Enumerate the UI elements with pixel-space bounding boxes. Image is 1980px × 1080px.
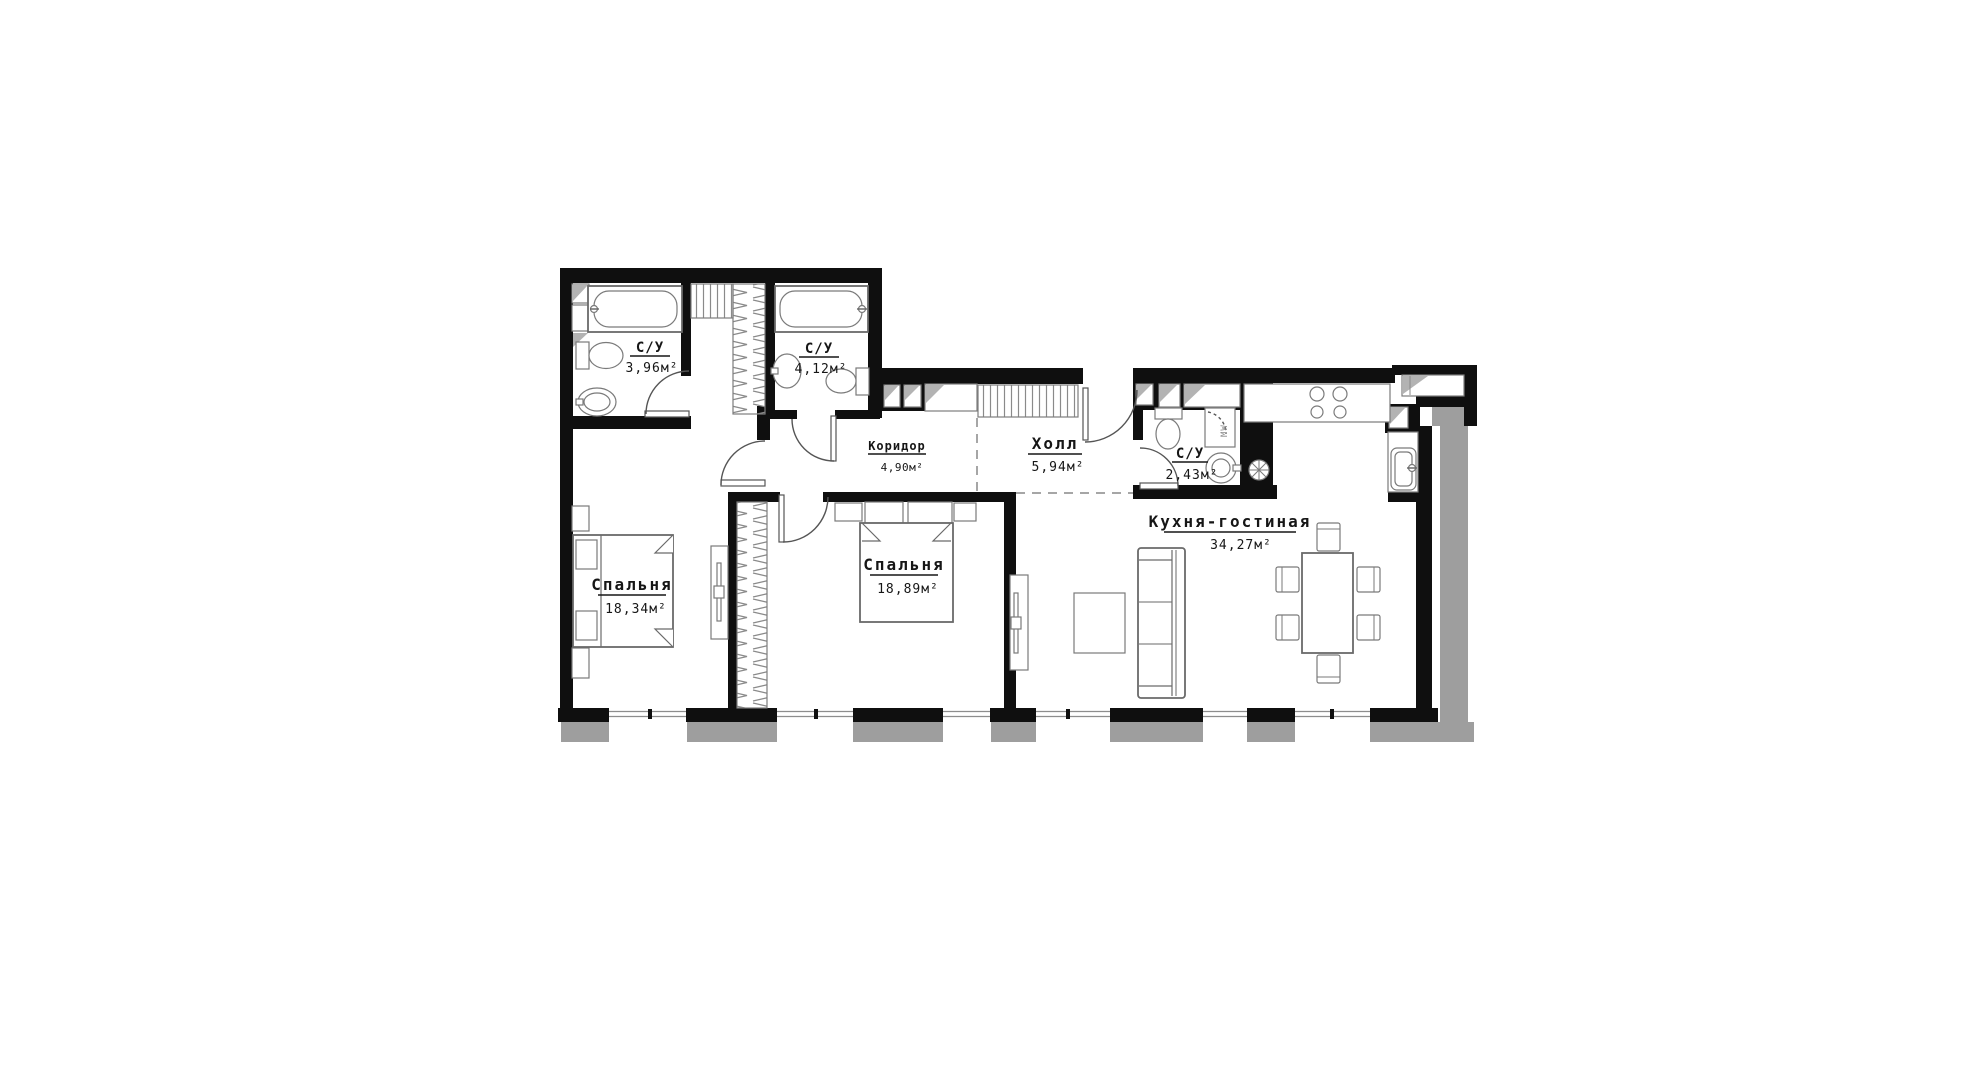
svg-text:С/У: С/У	[1176, 446, 1204, 462]
chair-icon	[1276, 567, 1299, 592]
washing-machine-icon: MW	[1205, 408, 1235, 447]
kitchen-counter-top	[1244, 384, 1390, 422]
dining-table-icon	[1302, 553, 1353, 653]
zone-boundaries	[977, 418, 1133, 493]
sink-icon-1	[576, 388, 616, 416]
hall-wardrobe-hatch	[978, 385, 1078, 417]
svg-text:5,94м²: 5,94м²	[1032, 460, 1085, 475]
svg-text:Коридор: Коридор	[868, 439, 926, 453]
svg-text:С/У: С/У	[636, 340, 664, 356]
bedroom-divider-wardrobe-hatch	[737, 502, 767, 708]
kitchen-counter-right	[1388, 432, 1418, 492]
vent-fan-icon	[1249, 460, 1269, 480]
svg-text:4,90м²: 4,90м²	[881, 461, 924, 474]
svg-text:Спальня: Спальня	[591, 575, 672, 594]
sofa-icon	[1138, 548, 1185, 698]
chair-icon	[1357, 615, 1380, 640]
svg-text:2,43м²: 2,43м²	[1166, 468, 1219, 483]
svg-text:4,12м²: 4,12м²	[795, 362, 848, 377]
door-bedroom-2	[779, 495, 828, 542]
door-bedroom-1	[721, 441, 765, 486]
svg-text:С/У: С/У	[805, 341, 833, 357]
svg-text:Кухня-гостиная: Кухня-гостиная	[1149, 512, 1312, 531]
svg-text:Холл: Холл	[1032, 434, 1079, 453]
bathtub-icon-2	[775, 286, 868, 332]
svg-text:34,27м²: 34,27м²	[1210, 538, 1272, 553]
door-bathroom-1	[645, 371, 689, 417]
toilet-icon-3	[1155, 408, 1182, 449]
svg-text:18,34м²: 18,34м²	[605, 602, 667, 617]
floor-plan-drawing: MW	[0, 0, 1980, 1080]
svg-text:3,96м²: 3,96м²	[626, 361, 679, 376]
washer-label: MW	[1220, 424, 1230, 437]
chair-icon	[1317, 655, 1340, 683]
door-bathroom-2	[792, 416, 836, 461]
coffee-table-icon	[1074, 593, 1125, 653]
door-hall-kitchen	[1083, 388, 1137, 442]
svg-text:Спальня: Спальня	[863, 555, 944, 574]
closet-hatch-2	[733, 284, 765, 414]
chair-icon	[1317, 523, 1340, 551]
kitchen-sink-icon	[1391, 448, 1417, 490]
tv-dresser-icon-1	[711, 546, 728, 639]
chair-icon	[1276, 615, 1299, 640]
floor-plan-canvas: MW	[0, 0, 1980, 1080]
bathtub-icon-1	[588, 286, 682, 332]
chair-icon	[1357, 567, 1380, 592]
toilet-icon-1	[576, 342, 623, 369]
label-corridor: Коридор 4,90м²	[868, 439, 926, 474]
label-bathroom-2: С/У 4,12м²	[795, 341, 848, 377]
closet-hatch-1	[691, 284, 733, 318]
label-kitchen-living: Кухня-гостиная 34,27м²	[1149, 512, 1312, 553]
label-bathroom-1: С/У 3,96м²	[626, 340, 679, 376]
label-hall: Холл 5,94м²	[1028, 434, 1084, 475]
svg-text:18,89м²: 18,89м²	[877, 582, 939, 597]
tv-dresser-icon-2	[1010, 575, 1028, 670]
